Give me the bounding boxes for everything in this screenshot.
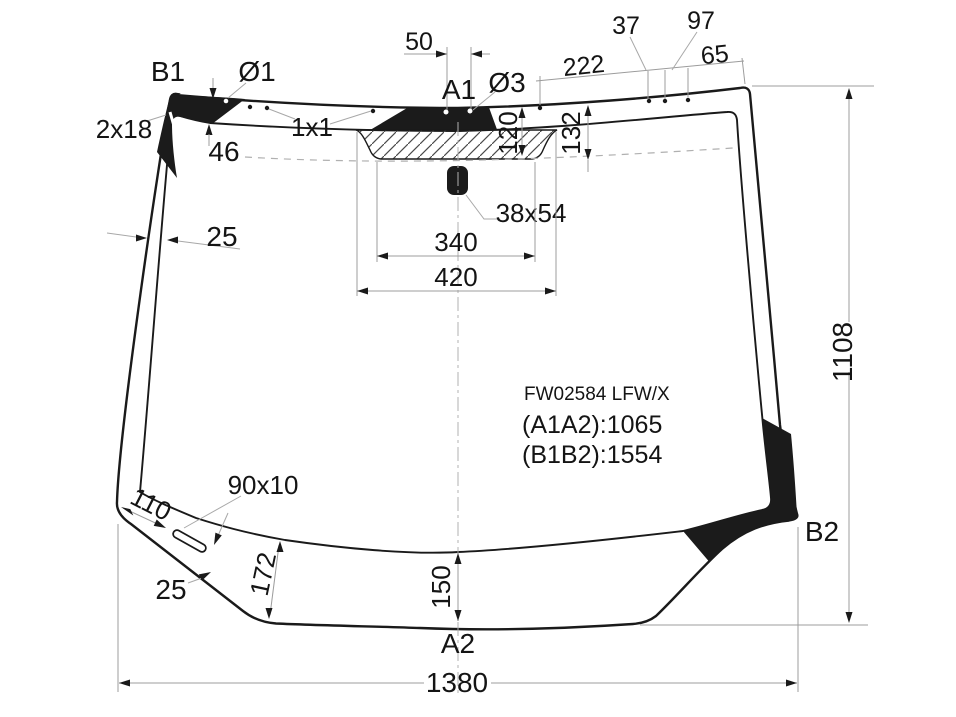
dim-hole-d1: Ø1 — [228, 56, 276, 98]
dim-band-bottom-25: 25 — [155, 572, 211, 605]
hole-d1-dot — [224, 99, 229, 104]
dim-corner-marks: 2x18 — [96, 114, 166, 144]
windshield-diagram: abcp — [0, 0, 956, 717]
point-a1-label: A1 — [442, 74, 476, 105]
hole-d3-dot-right — [468, 109, 473, 114]
dim-band-h-120: 120 — [493, 107, 526, 156]
dim-d3-label: Ø3 — [488, 67, 525, 98]
measurement-b1b2-text: (B1B2):1554 — [522, 441, 662, 469]
point-b1-label: B1 — [151, 56, 185, 87]
dim-50-label: 50 — [405, 28, 433, 56]
mirror-hatched-area — [356, 130, 557, 159]
point-a2-label: A2 — [441, 628, 475, 659]
dim-132-label: 132 — [556, 111, 586, 154]
dim-340-label: 340 — [434, 227, 477, 257]
dim-d1-label: Ø1 — [238, 56, 275, 87]
point-b2-label: B2 — [805, 516, 839, 547]
dim-37-label: 37 — [612, 12, 640, 40]
dim-150-label: 150 — [426, 565, 456, 608]
part-info-block: FW02584 LFW/X (A1A2):1065 (B1B2):1554 — [522, 384, 670, 469]
dim-1380-label: 1380 — [426, 667, 488, 698]
dim-46-label: 46 — [208, 136, 239, 167]
dim-120-label: 120 — [493, 111, 523, 154]
dim-1108-label: 1108 — [827, 322, 858, 382]
dim-hole-d3: Ø3 — [473, 67, 526, 110]
measurement-a1a2-text: (A1A2):1065 — [522, 411, 662, 439]
dim-90x10-label: 90x10 — [228, 470, 299, 500]
dim-222-label: 222 — [562, 50, 606, 82]
dim-2x18-label: 2x18 — [96, 114, 152, 144]
dim-25-left-label: 25 — [206, 221, 237, 252]
dim-25-bottom-label: 25 — [155, 574, 186, 605]
dim-97-label: 97 — [687, 7, 715, 35]
windshield-diagram-page: abcp — [0, 0, 956, 717]
hole-d3-dot-left — [444, 110, 449, 115]
dim-65-label: 65 — [699, 40, 730, 71]
dim-1x1-label: 1x1 — [291, 112, 333, 142]
part-code-text: FW02584 LFW/X — [524, 384, 670, 405]
dim-420-label: 420 — [434, 262, 477, 292]
